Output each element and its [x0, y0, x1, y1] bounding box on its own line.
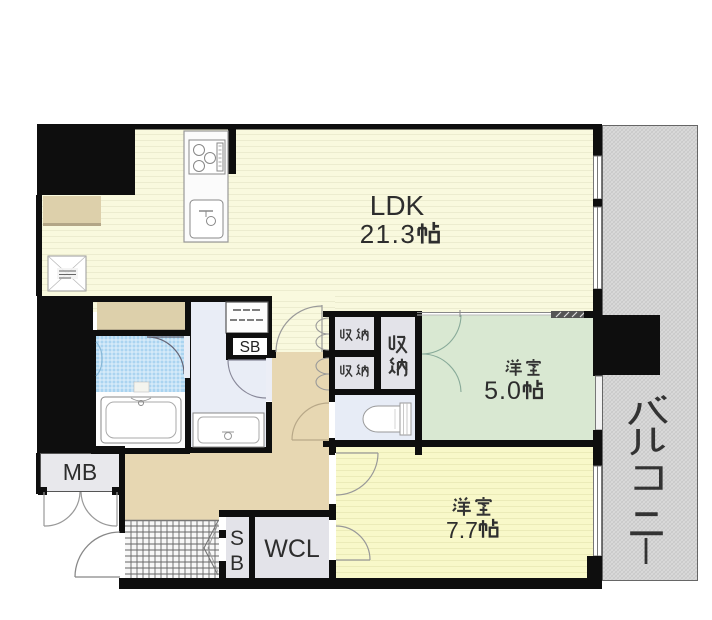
svg-text:5.0: 5.0 [484, 377, 522, 405]
svg-text:B: B [230, 552, 244, 575]
svg-text:MB: MB [63, 459, 98, 485]
svg-text:LDK: LDK [370, 190, 425, 221]
svg-text:21.3: 21.3 [360, 219, 417, 249]
svg-text:WCL: WCL [264, 535, 320, 563]
svg-text:7.7: 7.7 [446, 517, 478, 543]
svg-text:S: S [230, 527, 244, 550]
svg-text:SB: SB [240, 339, 261, 356]
